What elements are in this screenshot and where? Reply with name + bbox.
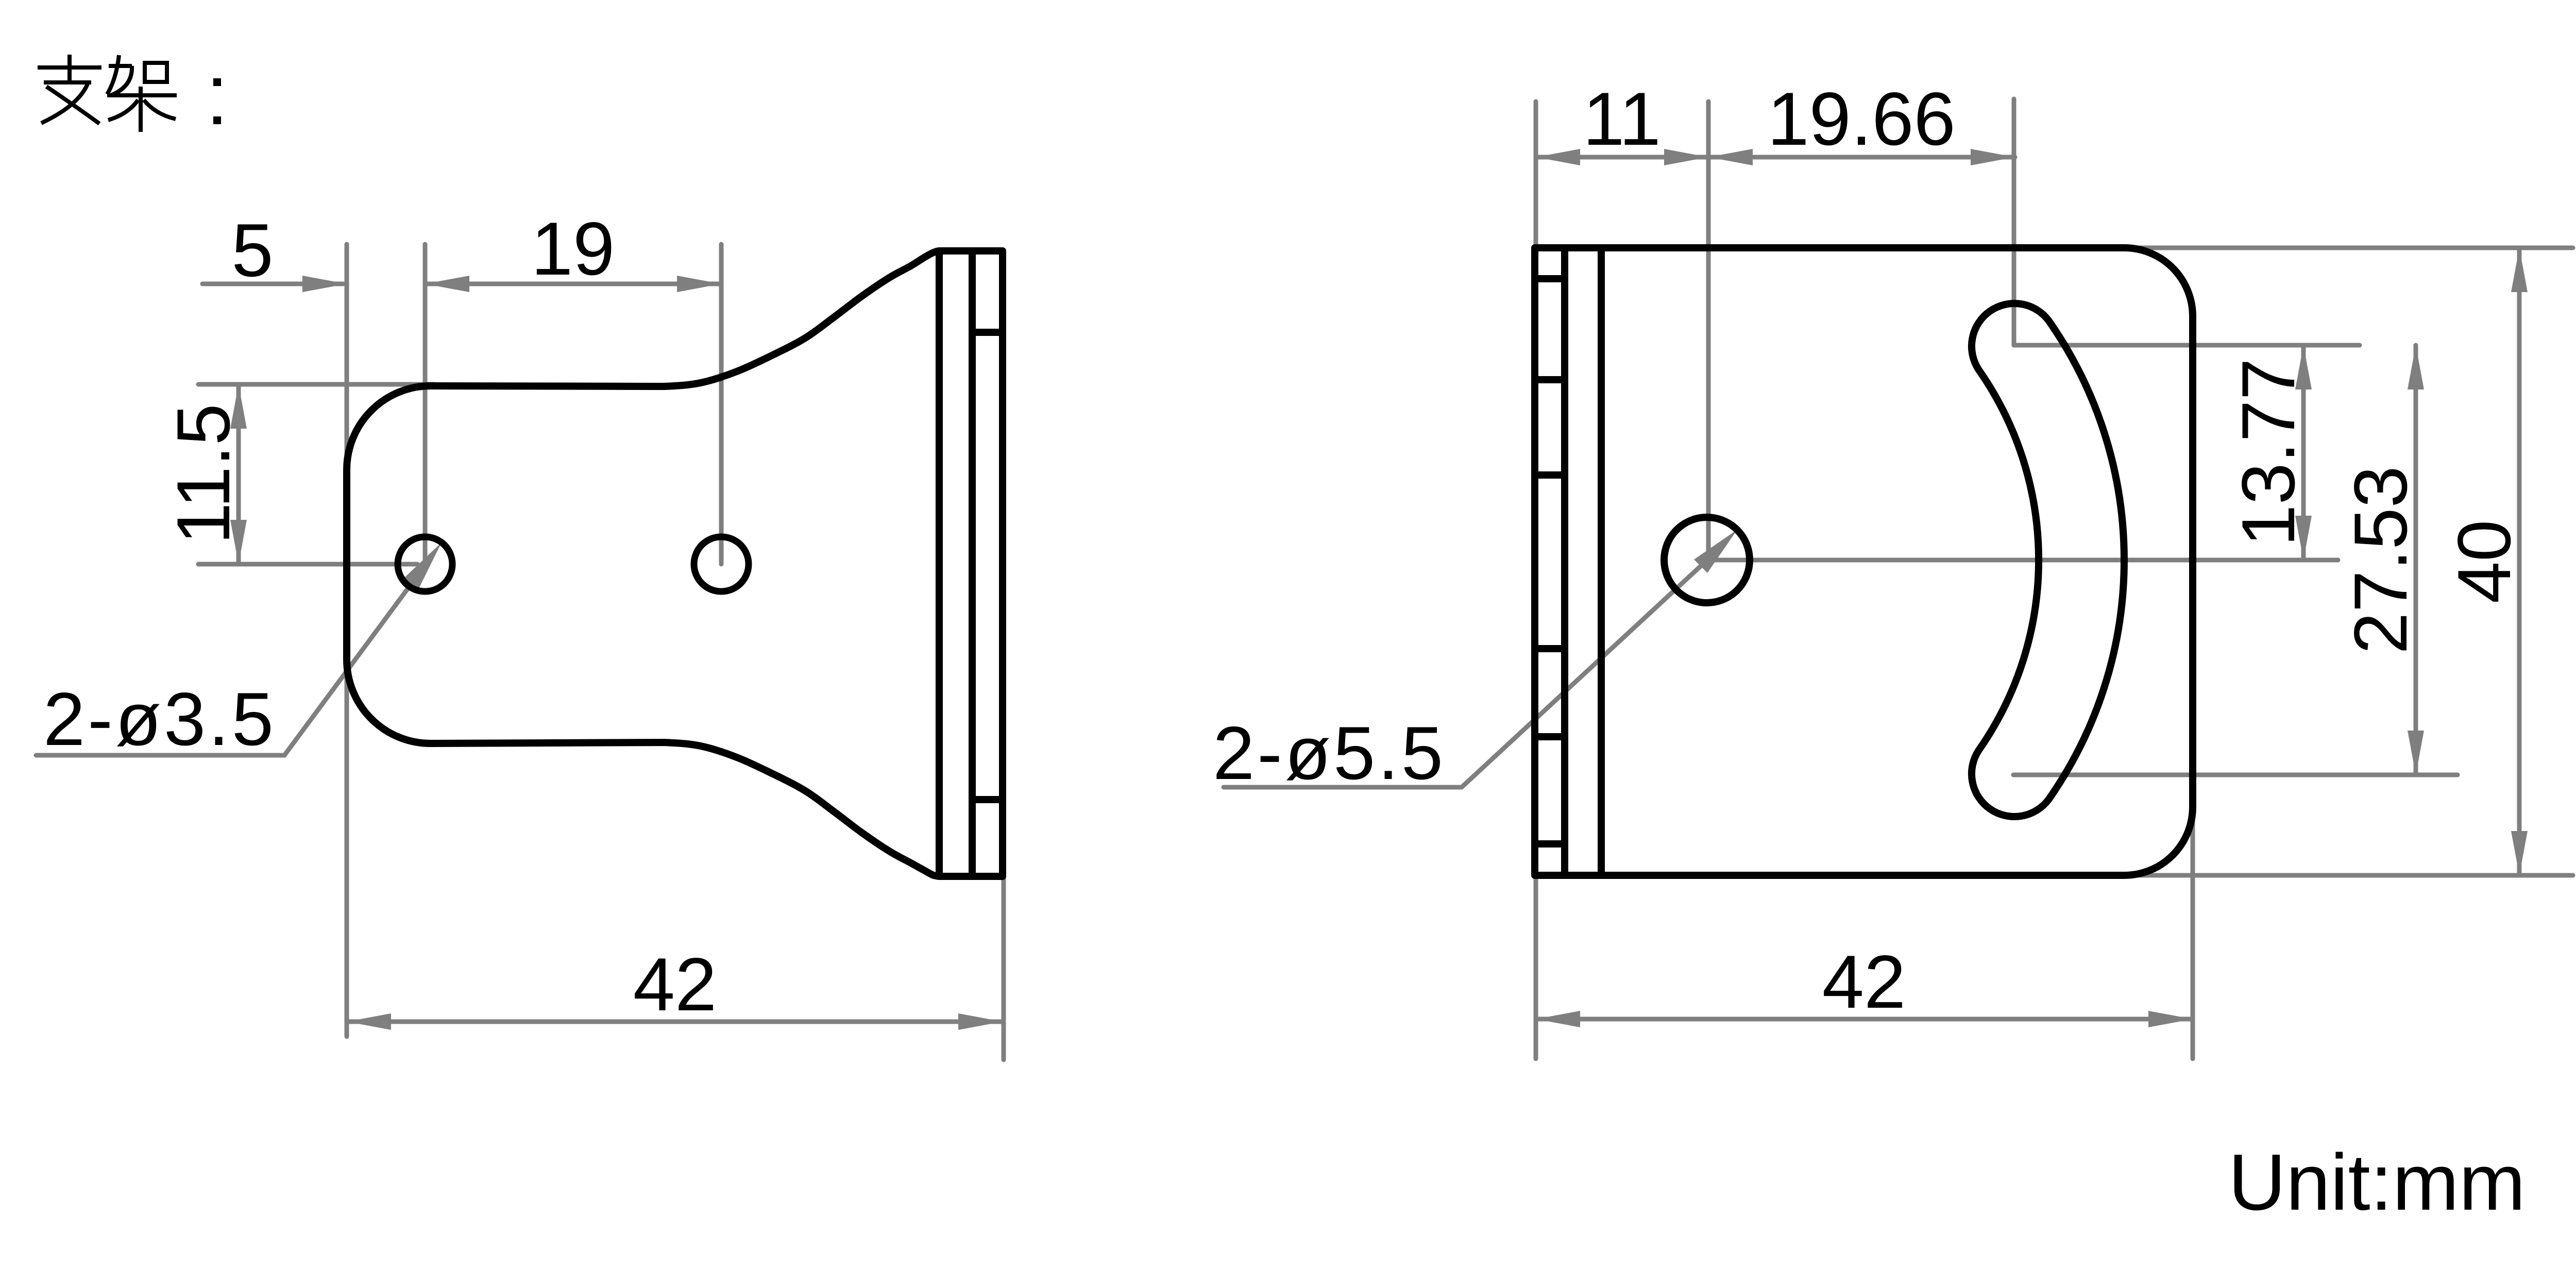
svg-text:11: 11: [1583, 77, 1661, 161]
svg-text:42: 42: [1822, 940, 1906, 1024]
svg-text:2-ø5.5: 2-ø5.5: [1213, 711, 1446, 795]
svg-text:2-ø3.5: 2-ø3.5: [43, 677, 276, 761]
svg-text:40: 40: [2442, 520, 2526, 603]
svg-text:19: 19: [531, 207, 615, 291]
svg-text:42: 42: [633, 942, 717, 1026]
svg-text:13.77: 13.77: [2226, 358, 2310, 546]
svg-text:19.66: 19.66: [1767, 77, 1955, 161]
svg-text:11.5: 11.5: [161, 403, 245, 544]
svg-text:Unit:mm: Unit:mm: [2228, 1138, 2526, 1227]
svg-text:27.53: 27.53: [2338, 466, 2422, 654]
svg-text:5: 5: [231, 208, 273, 292]
